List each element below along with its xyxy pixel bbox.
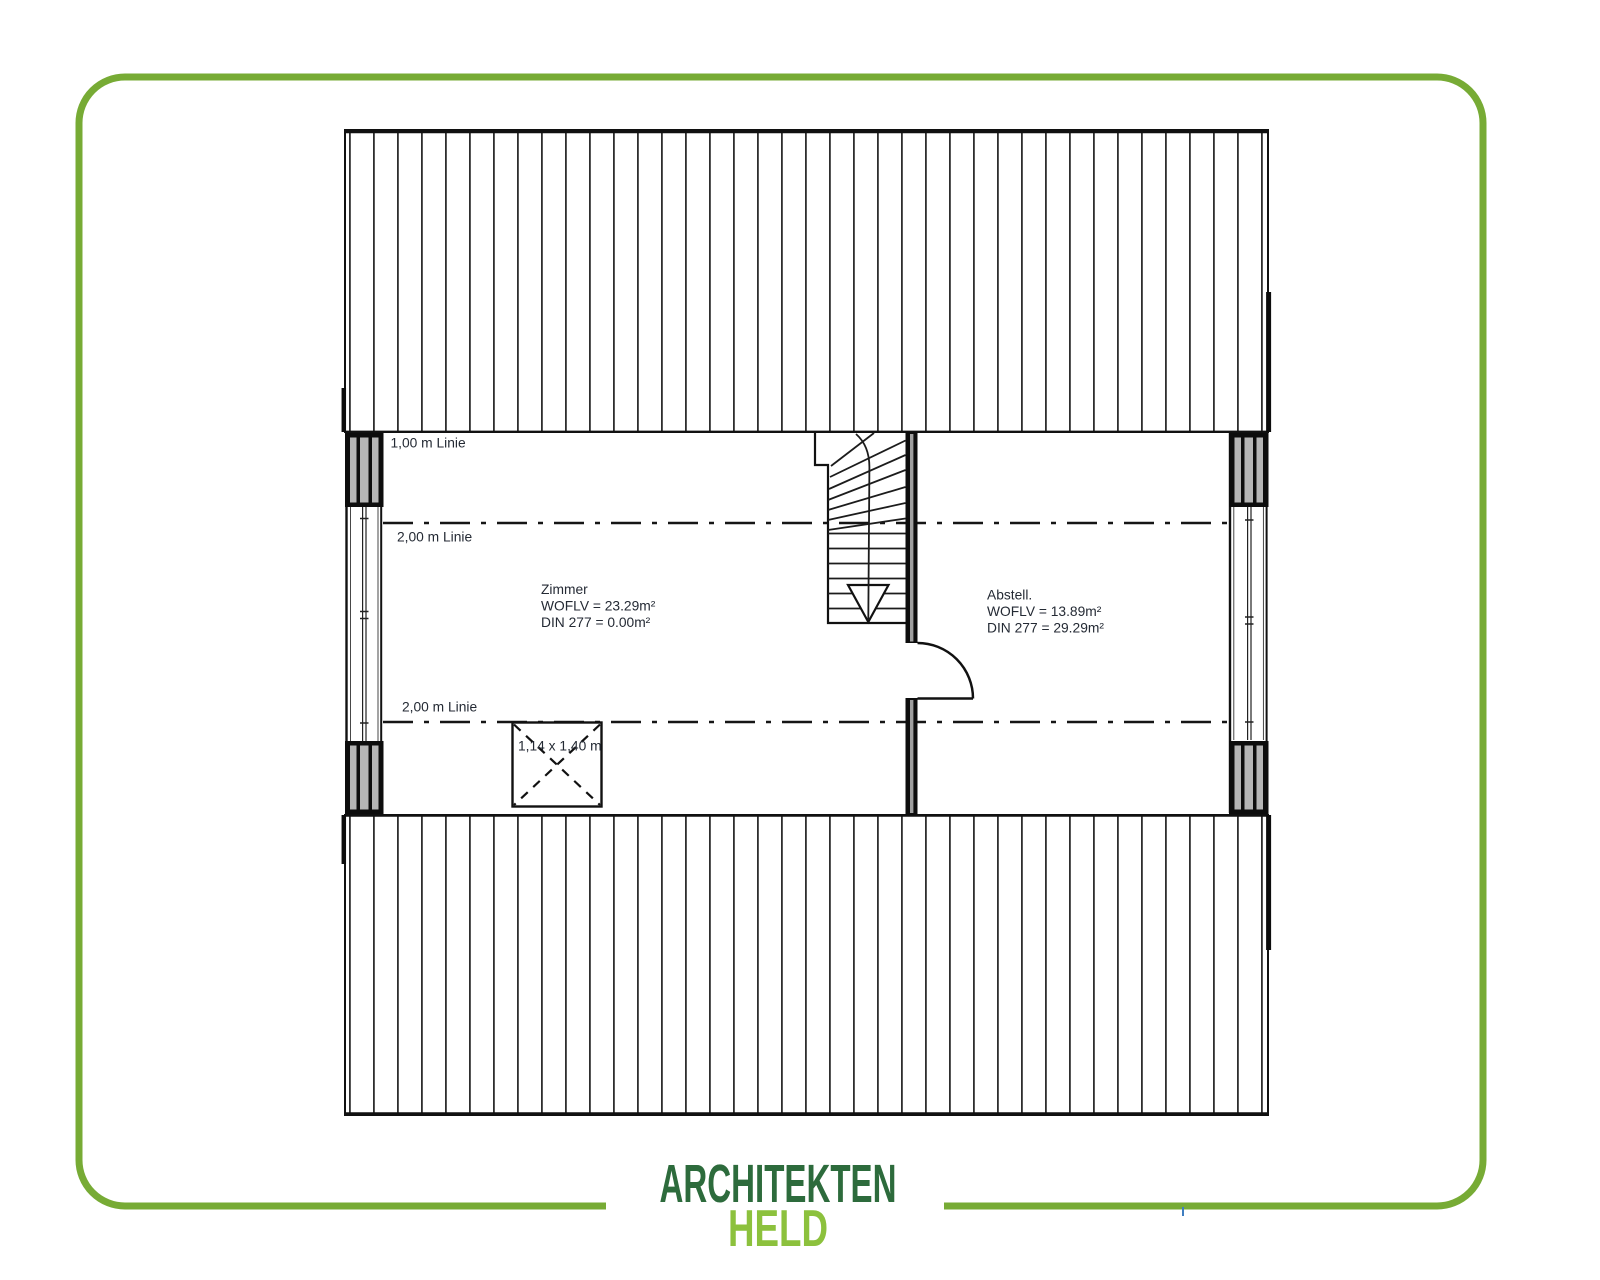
floorplan-canvas: 1,14 x 1,40 m 1,00 m Linie 2,00 m Linie … <box>0 0 1600 1280</box>
partition-wall-upper <box>906 432 918 643</box>
room-zimmer-woflv: WOFLV = 23.29m² <box>541 599 656 614</box>
room-abstell-din: DIN 277 = 29.29m² <box>987 621 1104 636</box>
roof-hatch-bottom <box>344 815 1269 1115</box>
roof-hatch-top <box>344 130 1269 432</box>
logo-held: HELD <box>728 1200 828 1258</box>
window-left-top-mullion <box>345 433 384 507</box>
window-right-top-mullion <box>1229 433 1269 507</box>
window-right-bottom-mullion <box>1229 741 1269 814</box>
label-2m-linie-upper: 2,00 m Linie <box>397 530 472 545</box>
window-left-bottom-mullion <box>345 741 384 814</box>
label-2m-linie-lower: 2,00 m Linie <box>402 700 477 715</box>
partition-wall-lower <box>906 698 918 815</box>
room-abstell-name: Abstell. <box>987 588 1032 603</box>
room-zimmer-din: DIN 277 = 0.00m² <box>541 615 651 630</box>
skylight-size-label: 1,14 x 1,40 m <box>518 739 602 754</box>
skylight: 1,14 x 1,40 m <box>513 723 602 807</box>
room-zimmer-name: Zimmer <box>541 582 588 597</box>
room-abstell-woflv: WOFLV = 13.89m² <box>987 604 1102 619</box>
label-1m-linie: 1,00 m Linie <box>391 436 466 451</box>
